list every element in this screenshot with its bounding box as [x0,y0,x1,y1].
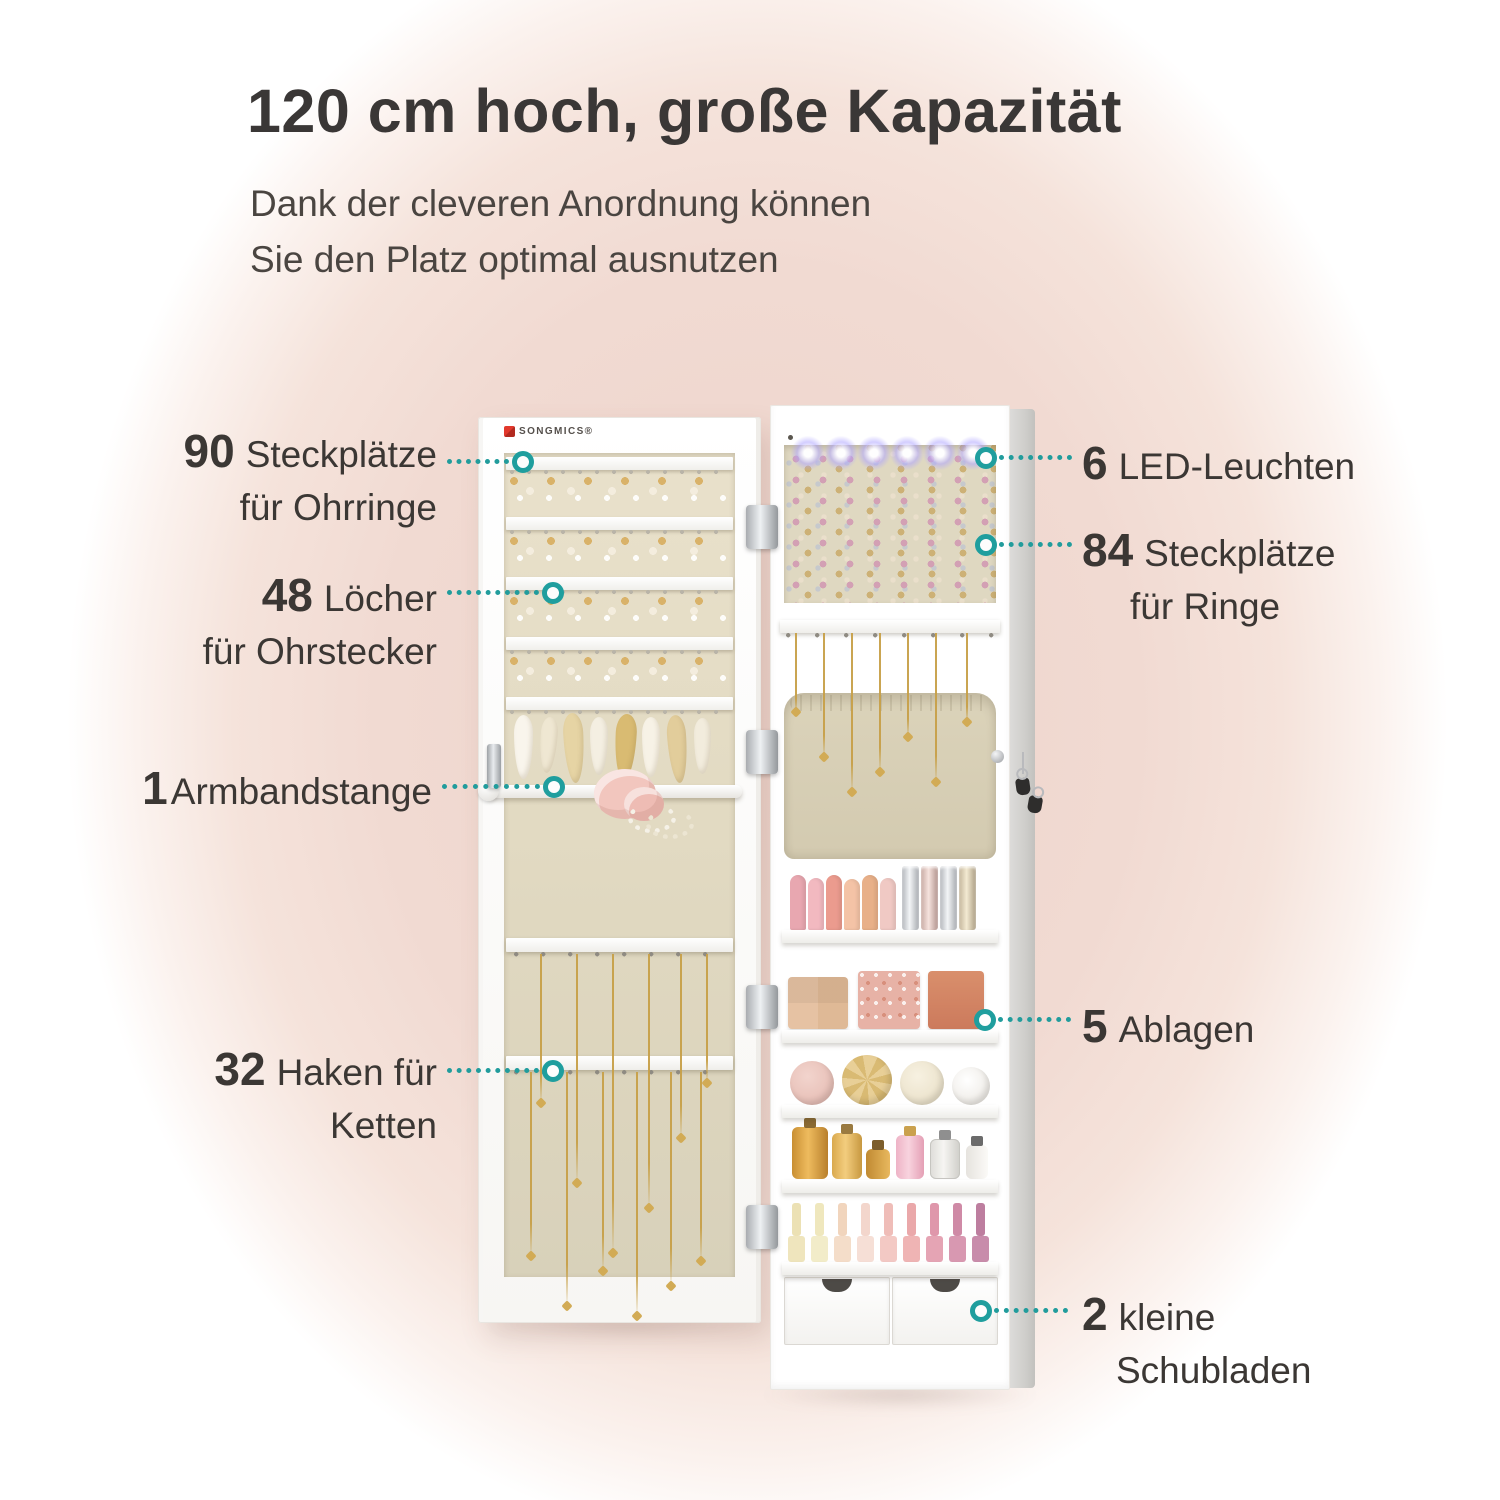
necklace [540,954,542,1104]
callout-marker [975,534,997,556]
necklace [935,633,937,783]
hinge [746,985,778,1029]
nail-polish [972,1236,989,1262]
necklace [566,1072,568,1307]
necklace [907,633,909,738]
brand-logo: SONGMICS® [504,426,593,437]
pearl-bracelet [646,809,694,839]
cosmetic-tube [959,866,976,930]
callout-label: Löcher [324,578,437,619]
shelf [782,1105,998,1118]
necklace [670,1072,672,1287]
lipstick [826,875,842,930]
necklace [795,633,797,713]
callout-label: Steckplätze [1144,533,1335,574]
callout-label: Haken für [277,1052,437,1093]
glitter-palette [858,971,920,1029]
earring-bar [506,637,733,650]
nail-polish [949,1236,966,1262]
necklace-hook-bar [506,938,733,952]
callout-earring-slots-line2: für Ohrringe [240,483,437,533]
earring-bar [506,517,733,530]
page-title: 120 cm hoch, große Kapazität [247,76,1122,146]
perfume-bottle [896,1135,924,1179]
screw-dot [788,435,793,440]
leader-line [999,455,1072,460]
led-light [790,435,826,471]
callout-drawers-line2: Schubladen [1116,1346,1311,1396]
shelf [782,1030,998,1043]
nail-polish [811,1236,828,1262]
callout-marker [542,1060,564,1082]
necklace-hook-bar [780,620,1000,633]
cosmetic-tube [940,866,957,930]
brand-logo-icon [504,426,515,437]
callout-stud-holes-line2: für Ohrstecker [203,627,437,677]
leader-line [999,542,1072,547]
brand-logo-text: SONGMICS® [519,426,593,437]
nail-polish [857,1236,874,1262]
cabinet-body [770,405,1010,1390]
earrings-row [508,533,731,569]
nail-polish [903,1236,920,1262]
led-light [889,435,925,471]
callout-stud-holes: 48Löcher [262,570,437,624]
necklace [700,1072,702,1262]
compact-jar [790,1061,834,1105]
leader-line [994,1308,1068,1313]
callout-necklace-hooks: 32Haken für [214,1044,437,1098]
led-light [856,435,892,471]
necklace [851,633,853,793]
subtitle-line-2: Sie den Platz optimal ausnutzen [250,232,871,288]
callout-earring-slots: 90Steckplätze [184,426,437,480]
lipstick [808,878,824,930]
hinge [746,730,778,774]
nail-polish [834,1236,851,1262]
led-light [823,435,859,471]
callout-bracelet-rod: 1Armbandstange [142,763,432,817]
compact-jar [952,1067,990,1105]
perfume-bottle [832,1133,862,1179]
perfume-bottle [930,1139,960,1179]
callout-drawers: 2kleine [1082,1289,1215,1343]
callout-number: 90 [184,425,235,477]
perfume-bottle [866,1149,890,1179]
earring-bar [506,577,733,590]
callout-label: Steckplätze [246,434,437,475]
compact-jar [842,1055,892,1105]
necklace [823,633,825,758]
callout-marker [974,1009,996,1031]
hinge [746,1205,778,1249]
necklace [879,633,881,773]
shelf [782,1180,998,1193]
necklace [576,954,578,1184]
shelf [782,930,998,943]
callout-necklace-hooks-line2: Ketten [330,1101,437,1151]
earrings-row [508,653,731,689]
earrings-row [508,593,731,629]
callout-shelves: 5Ablagen [1082,1001,1254,1055]
callout-marker [512,451,534,473]
necklace [680,954,682,1139]
necklace [612,954,614,1254]
callout-number: 48 [262,569,313,621]
leader-line [447,1068,539,1073]
cabinet-side-panel [1010,409,1035,1388]
cosmetic-tube [902,866,919,930]
lipstick [880,878,896,930]
subtitle-line-1: Dank der cleveren Anordnung können [250,176,871,232]
necklace [648,954,650,1209]
earrings-row [508,473,731,509]
leader-line [447,459,509,464]
leader-line [447,590,539,595]
shelf [782,1262,998,1275]
led-light [922,435,958,471]
necklace [636,1072,638,1317]
necklace [966,633,968,723]
necklace [706,954,708,1084]
callout-ring-slots-line2: für Ringe [1130,582,1280,632]
callout-number: 1 [142,762,168,814]
callout-marker [542,582,564,604]
callout-number: 2 [1082,1288,1108,1340]
necklace [602,1072,604,1272]
callout-label: Armbandstange [171,771,432,812]
cosmetic-tube [921,866,938,930]
callout-number: 6 [1082,437,1108,489]
small-drawer [784,1277,890,1345]
leader-line [442,784,540,789]
nail-polish [880,1236,897,1262]
callout-marker [543,776,565,798]
hinge [746,505,778,549]
door-latch [487,744,501,788]
nail-polish [788,1236,805,1262]
callout-label: Ablagen [1119,1009,1255,1050]
callout-number: 32 [214,1043,265,1095]
earring-bar [506,697,733,710]
nail-polish [926,1236,943,1262]
necklace [530,1072,532,1257]
perfume-bottle [792,1127,828,1179]
page-subtitle: Dank der cleveren Anordnung können Sie d… [250,176,871,288]
key [1015,777,1031,796]
compact-jar [900,1061,944,1105]
lipstick [844,879,860,930]
cabinet-door-open: SONGMICS® [478,417,761,1323]
perfume-bottle [966,1145,988,1179]
callout-marker [970,1300,992,1322]
callout-number: 5 [1082,1000,1108,1052]
lock-knob [991,750,1004,763]
callout-label: LED-Leuchten [1119,446,1356,487]
leader-line [998,1017,1071,1022]
callout-ring-slots: 84Steckplätze [1082,525,1335,579]
lipstick [862,875,878,930]
callout-marker [975,447,997,469]
callout-led-lights: 6LED-Leuchten [1082,438,1355,492]
makeup-palette [788,977,848,1029]
callout-number: 84 [1082,524,1133,576]
callout-label: kleine [1119,1297,1216,1338]
earring-bar [506,457,733,470]
lipstick [790,875,806,930]
product-infographic: 120 cm hoch, große Kapazität Dank der cl… [0,0,1500,1500]
